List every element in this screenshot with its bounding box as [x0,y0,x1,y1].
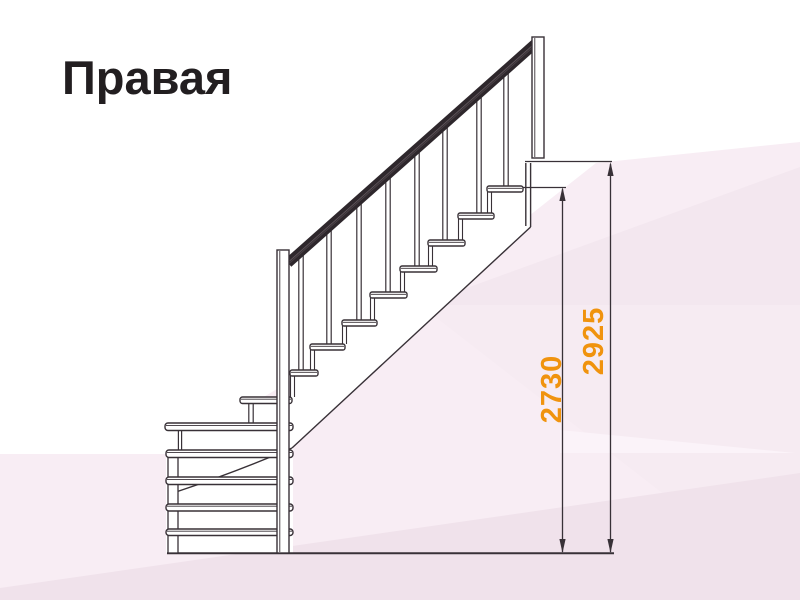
diagram-title: Правая [62,50,232,105]
top-newel-post [532,37,544,158]
dimension-label-total-height: 2925 [579,305,609,377]
dimension-label-flight-height: 2730 [537,353,567,425]
background-facets [0,142,800,600]
staircase-diagram: Правая 2730 2925 [0,0,800,600]
winder-post [168,452,178,553]
corner-newel-post [277,250,289,553]
